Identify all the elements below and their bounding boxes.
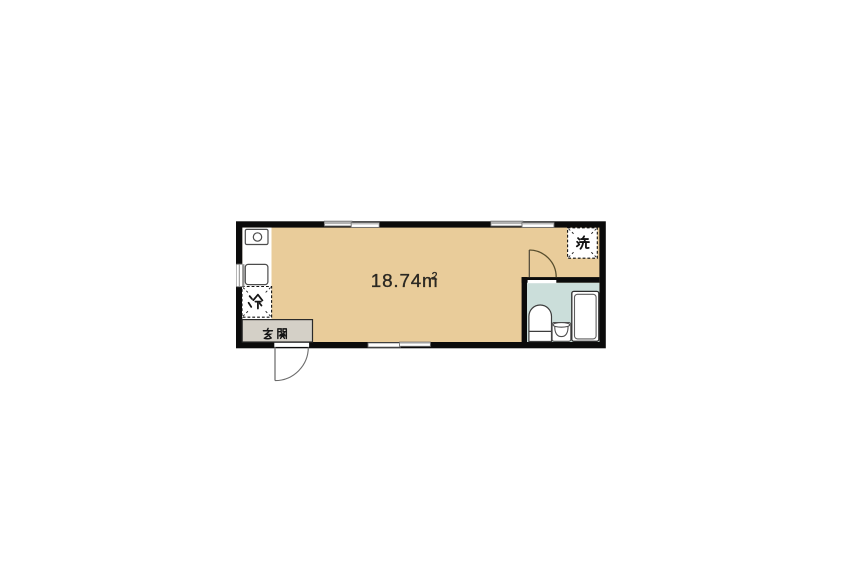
svg-text:18.74m: 18.74m xyxy=(371,270,439,291)
svg-text:2: 2 xyxy=(432,271,438,283)
